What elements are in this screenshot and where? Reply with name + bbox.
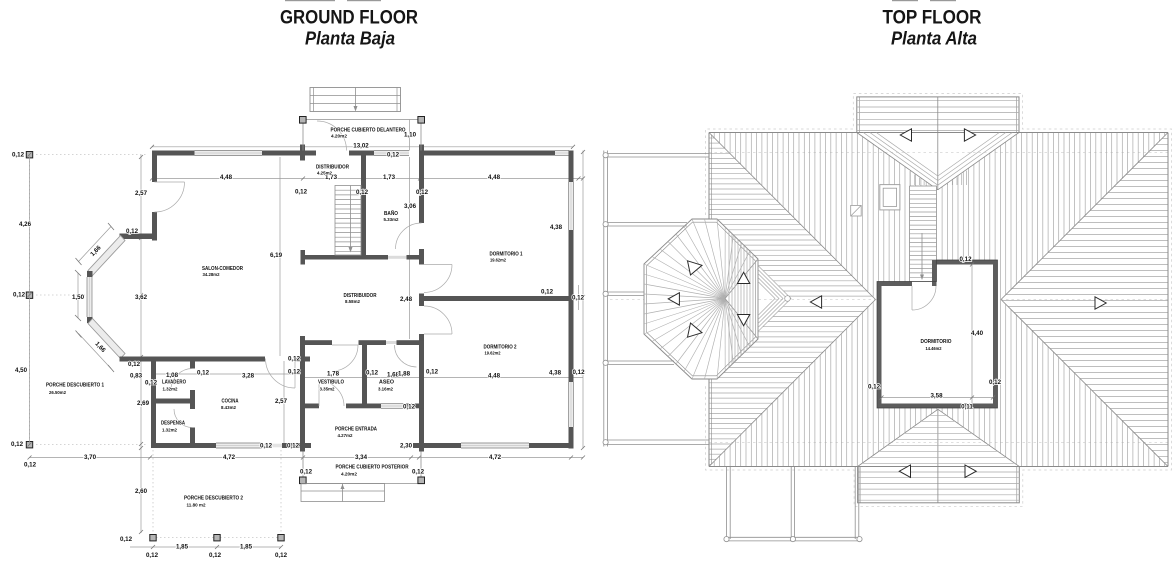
svg-text:0,12: 0,12	[287, 443, 300, 450]
svg-text:34.28m2: 34.28m2	[203, 272, 220, 278]
svg-text:0,12: 0,12	[300, 469, 313, 476]
svg-text:0,12: 0,12	[120, 536, 133, 543]
svg-text:0,12: 0,12	[356, 189, 369, 196]
svg-text:0,12: 0,12	[146, 552, 159, 559]
svg-text:2,48: 2,48	[400, 296, 413, 303]
svg-text:3,70: 3,70	[84, 454, 97, 461]
svg-text:11.80 m2: 11.80 m2	[187, 502, 206, 508]
svg-text:0,12: 0,12	[403, 404, 416, 411]
svg-text:DORMITORIO: DORMITORIO	[921, 339, 952, 345]
svg-text:PORCHE CUBIERTO DELANTERO: PORCHE CUBIERTO DELANTERO	[331, 127, 406, 133]
svg-text:0,12: 0,12	[260, 443, 273, 450]
svg-text:PORCHE ENTRADA: PORCHE ENTRADA	[335, 426, 377, 432]
svg-text:0,12: 0,12	[126, 228, 139, 235]
svg-text:0,11: 0,11	[961, 404, 973, 411]
svg-text:1,50: 1,50	[72, 294, 85, 301]
svg-text:4,48: 4,48	[488, 174, 501, 181]
svg-text:1,08: 1,08	[166, 372, 179, 379]
svg-text:COCINA: COCINA	[222, 398, 239, 404]
svg-text:4,50: 4,50	[15, 367, 28, 374]
svg-text:DESPENSA: DESPENSA	[161, 420, 185, 426]
svg-text:VESTIBULO: VESTIBULO	[318, 379, 344, 385]
svg-text:0,12: 0,12	[288, 369, 301, 376]
svg-text:DISTRIBUIDOR: DISTRIBUIDOR	[344, 293, 377, 299]
svg-text:1,88: 1,88	[398, 371, 411, 378]
svg-text:2,30: 2,30	[400, 443, 413, 450]
svg-text:0,12: 0,12	[366, 370, 379, 377]
svg-text:DORMITORIO 2: DORMITORIO 2	[484, 344, 517, 350]
svg-text:1.32m2: 1.32m2	[162, 427, 177, 433]
svg-text:SALON-COMEDOR: SALON-COMEDOR	[202, 266, 243, 272]
svg-text:3,06: 3,06	[404, 203, 417, 210]
svg-text:3,28: 3,28	[242, 373, 255, 380]
svg-text:Planta Alta: Planta Alta	[891, 29, 977, 49]
svg-text:4.27m2: 4.27m2	[338, 433, 353, 439]
svg-text:0,12: 0,12	[868, 384, 881, 391]
svg-text:TOP FLOOR: TOP FLOOR	[883, 8, 982, 29]
svg-text:0,83: 0,83	[130, 373, 143, 380]
svg-text:0,12: 0,12	[572, 369, 585, 376]
svg-text:4,26: 4,26	[19, 221, 32, 228]
svg-text:4.20m2: 4.20m2	[341, 471, 357, 477]
svg-text:4,38: 4,38	[549, 370, 562, 377]
svg-text:0,12: 0,12	[959, 256, 972, 263]
svg-text:19.62m2: 19.62m2	[490, 257, 506, 263]
svg-text:PORCHE DESCUBIERTO 2: PORCHE DESCUBIERTO 2	[184, 495, 243, 501]
svg-text:3,34: 3,34	[355, 454, 368, 461]
svg-text:4,48: 4,48	[488, 373, 501, 380]
svg-text:0,12: 0,12	[989, 379, 1002, 386]
svg-text:ASEO: ASEO	[379, 379, 394, 385]
svg-text:4,72: 4,72	[223, 454, 236, 461]
svg-text:0,12: 0,12	[24, 462, 37, 469]
svg-text:3,62: 3,62	[135, 294, 148, 301]
svg-text:0,12: 0,12	[145, 380, 158, 387]
svg-text:2,57: 2,57	[135, 190, 148, 197]
svg-text:0,12: 0,12	[412, 469, 425, 476]
svg-text:4,72: 4,72	[489, 454, 502, 461]
svg-text:DORMITORIO 1: DORMITORIO 1	[490, 251, 523, 257]
svg-text:4.20m2: 4.20m2	[331, 133, 347, 139]
svg-text:1,85: 1,85	[176, 544, 189, 551]
svg-text:0,12: 0,12	[541, 289, 554, 296]
svg-text:1.32m2: 1.32m2	[163, 386, 178, 392]
svg-text:6,19: 6,19	[270, 252, 283, 259]
svg-text:3,58: 3,58	[930, 393, 943, 400]
svg-text:0,12: 0,12	[197, 370, 210, 377]
svg-text:1,73: 1,73	[383, 174, 396, 181]
svg-text:0,12: 0,12	[416, 189, 429, 196]
svg-text:Planta Baja: Planta Baja	[305, 29, 395, 49]
svg-text:BAÑO: BAÑO	[384, 210, 398, 217]
svg-text:0,12: 0,12	[209, 552, 222, 559]
svg-text:0,12: 0,12	[295, 189, 308, 196]
svg-text:3.35m2: 3.35m2	[320, 386, 335, 392]
svg-text:4.25m2: 4.25m2	[317, 170, 332, 176]
svg-text:13,02: 13,02	[353, 143, 369, 150]
svg-text:4,48: 4,48	[220, 174, 233, 181]
svg-text:0,12: 0,12	[572, 295, 585, 302]
svg-text:0,12: 0,12	[426, 369, 439, 376]
svg-text:PORCHE CUBIERTO POSTERIOR: PORCHE CUBIERTO POSTERIOR	[336, 464, 409, 470]
svg-text:5.33m2: 5.33m2	[384, 217, 399, 223]
svg-text:2,60: 2,60	[135, 488, 148, 495]
svg-text:0,12: 0,12	[11, 441, 24, 448]
svg-text:LAVADERO: LAVADERO	[162, 379, 186, 385]
svg-text:1,85: 1,85	[240, 544, 253, 551]
svg-text:0,12: 0,12	[288, 356, 301, 363]
svg-text:0,12: 0,12	[275, 552, 288, 559]
svg-text:2,69: 2,69	[137, 400, 150, 407]
svg-text:0,12: 0,12	[128, 361, 141, 368]
svg-text:GROUND FLOOR: GROUND FLOOR	[280, 8, 418, 29]
svg-text:PORCHE DESCUBIERTO 1: PORCHE DESCUBIERTO 1	[46, 382, 104, 388]
svg-text:0,12: 0,12	[12, 152, 25, 159]
svg-text:19.62m2: 19.62m2	[485, 350, 501, 356]
svg-text:4,40: 4,40	[971, 330, 984, 337]
svg-text:3.16m2: 3.16m2	[378, 386, 393, 392]
svg-text:2,57: 2,57	[275, 398, 288, 405]
svg-text:1,78: 1,78	[327, 371, 340, 378]
svg-text:DISTRIBUIDOR: DISTRIBUIDOR	[316, 164, 349, 170]
svg-text:8.43m2: 8.43m2	[221, 405, 236, 411]
svg-text:0,12: 0,12	[13, 292, 26, 299]
svg-text:1,10: 1,10	[404, 132, 417, 139]
svg-text:8.58m2: 8.58m2	[345, 299, 360, 305]
svg-text:14.46m2: 14.46m2	[926, 346, 942, 352]
svg-text:0,12: 0,12	[387, 152, 400, 159]
svg-text:4,38: 4,38	[550, 224, 563, 231]
svg-text:26.50m2: 26.50m2	[49, 390, 66, 396]
